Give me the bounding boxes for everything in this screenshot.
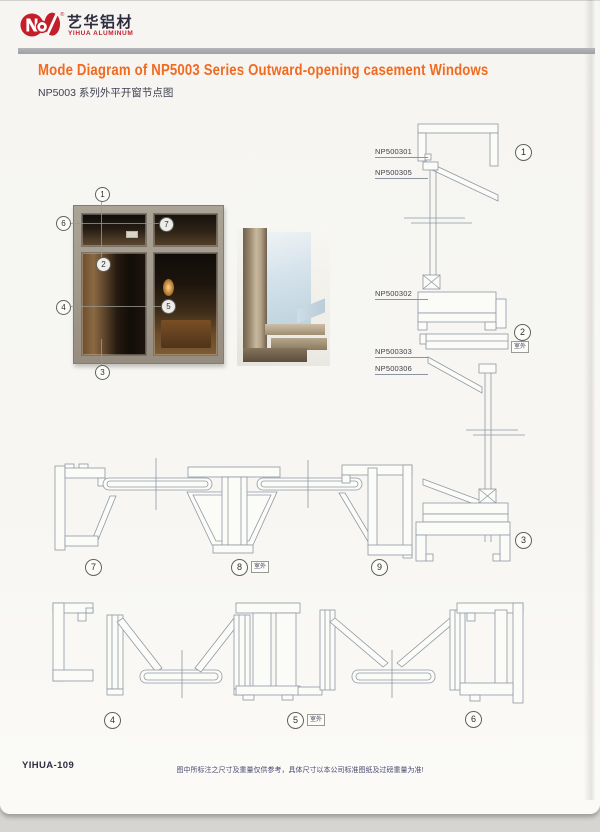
part-label-np500303: NP500303 xyxy=(375,346,428,358)
footer-note: 图中所标注之尺寸及重量仅供参考，具体尺寸以本公司标准图纸及过磅重量为准! xyxy=(0,765,600,775)
outdoor-tag-bottom: 室外 xyxy=(307,714,325,726)
middle-sections-drawing xyxy=(40,452,460,562)
photo-callout-4: 4 xyxy=(56,300,71,315)
section-callout-5: 5 xyxy=(287,712,304,729)
photo-lamp-glow xyxy=(163,279,174,296)
part-label-np500302: NP500302 xyxy=(375,288,428,300)
section-callout-6: 6 xyxy=(465,711,482,728)
scan-top-edge xyxy=(0,0,600,1)
cut-line-transom xyxy=(70,223,159,224)
brand-name-en: YIHUA ALUMINUM xyxy=(68,30,133,37)
photo-callout-5: 5 xyxy=(161,299,176,314)
section-callout-1: 1 xyxy=(515,144,532,161)
section-callout-4: 4 xyxy=(104,712,121,729)
yihua-logo-icon: ® xyxy=(20,8,66,42)
bottom-sections-drawing xyxy=(40,598,540,713)
photo-callout-3: 3 xyxy=(95,365,110,380)
catalog-page: ® 艺华铝材 YIHUA ALUMINUM Mode Diagram of NP… xyxy=(0,0,600,832)
detail-frame-vertical xyxy=(243,228,267,348)
photo-callout-1: 1 xyxy=(95,187,110,202)
section-callout-9: 9 xyxy=(371,559,388,576)
photo-callout-7: 7 xyxy=(159,217,174,232)
cut-line-vertical-upper xyxy=(101,201,102,257)
section-callout-2: 2 xyxy=(514,324,531,341)
detail-profile-step-3 xyxy=(243,348,307,362)
outdoor-tag-vertical: 室外 xyxy=(511,341,529,353)
photo-pane-top-left xyxy=(81,213,147,247)
brand-name-cn: 艺华铝材 xyxy=(67,11,133,32)
section-callout-7: 7 xyxy=(85,559,102,576)
cut-line-vertical-lower xyxy=(101,339,102,365)
photo-label-sticker xyxy=(126,231,138,238)
part-label-np500306: NP500306 xyxy=(375,363,428,375)
page-subtitle: NP5003 系列外平开窗节点图 xyxy=(38,85,173,100)
section-callout-8: 8 xyxy=(231,559,248,576)
photo-callout-6: 6 xyxy=(56,216,71,231)
photo-dining-table xyxy=(161,320,211,348)
svg-text:®: ® xyxy=(60,11,64,18)
part-label-np500305: NP500305 xyxy=(375,167,428,179)
paper-sheet: ® 艺华铝材 YIHUA ALUMINUM Mode Diagram of NP… xyxy=(0,0,600,814)
profile-detail-photo xyxy=(237,228,330,366)
header-divider-bar xyxy=(18,48,595,54)
window-photo xyxy=(73,205,224,364)
detail-profile-step-1 xyxy=(265,324,325,335)
page-title: Mode Diagram of NP5003 Series Outward-op… xyxy=(38,62,488,80)
outdoor-tag-middle: 室外 xyxy=(251,561,269,573)
cut-line-horizontal xyxy=(70,306,161,307)
photo-pane-bottom-left xyxy=(81,252,147,356)
scan-right-edge xyxy=(584,0,600,800)
part-label-np500301: NP500301 xyxy=(375,146,428,158)
section-callout-3: 3 xyxy=(515,532,532,549)
photo-callout-2: 2 xyxy=(96,257,111,272)
